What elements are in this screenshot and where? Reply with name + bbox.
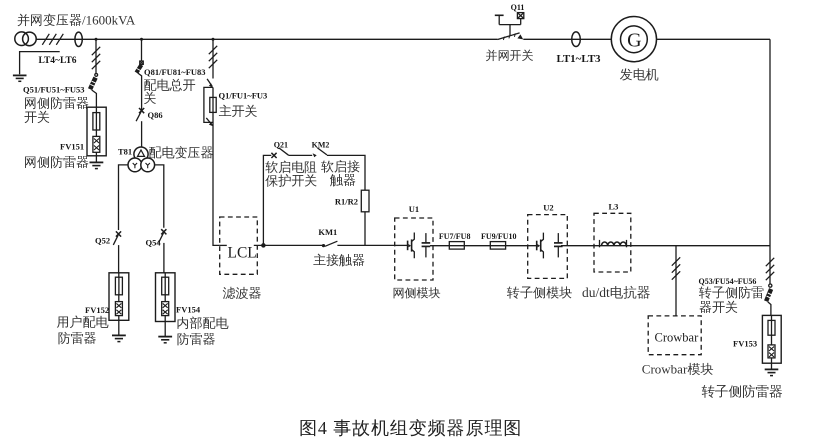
svg-text:Q11: Q11 <box>511 3 525 12</box>
svg-text:触器: 触器 <box>329 173 356 188</box>
svg-text:滤波器: 滤波器 <box>223 286 262 301</box>
svg-text:FU7/FU8: FU7/FU8 <box>439 232 471 241</box>
svg-text:保护开关: 保护开关 <box>264 173 317 188</box>
svg-text:开关: 开关 <box>24 110 50 125</box>
svg-text:Q52: Q52 <box>95 236 110 246</box>
svg-text:网侧防雷器: 网侧防雷器 <box>24 96 89 111</box>
svg-text:L3: L3 <box>609 202 619 212</box>
svg-text:转子侧模块: 转子侧模块 <box>507 285 572 300</box>
svg-text:U2: U2 <box>543 203 553 213</box>
svg-text:LT1~LT3: LT1~LT3 <box>557 53 602 65</box>
svg-text:Crowbar: Crowbar <box>655 331 700 345</box>
svg-text:器开关: 器开关 <box>699 300 738 315</box>
svg-text:Q81/FU81~FU83: Q81/FU81~FU83 <box>144 67 206 77</box>
svg-text:Q1/FU1~FU3: Q1/FU1~FU3 <box>219 91 268 101</box>
svg-text:Q54: Q54 <box>146 238 162 248</box>
svg-text:U1: U1 <box>409 204 419 214</box>
svg-text:并网变压器/1600kVA: 并网变压器/1600kVA <box>17 13 136 28</box>
svg-text:主开关: 主开关 <box>219 104 258 119</box>
svg-text:内部配电: 内部配电 <box>177 316 229 331</box>
svg-text:图4 事故机组变频器原理图: 图4 事故机组变频器原理图 <box>299 418 522 438</box>
svg-text:并网开关: 并网开关 <box>486 49 534 63</box>
svg-text:主接触器: 主接触器 <box>313 253 365 268</box>
svg-text:发电机: 发电机 <box>620 67 660 82</box>
svg-text:转子侧防雷器: 转子侧防雷器 <box>702 384 783 399</box>
svg-text:T81: T81 <box>118 147 132 157</box>
svg-text:KM1: KM1 <box>318 227 337 237</box>
svg-text:关: 关 <box>144 91 157 106</box>
svg-text:FV153: FV153 <box>733 339 757 349</box>
svg-text:LT4~LT6: LT4~LT6 <box>39 56 77 66</box>
svg-text:Q51/FU51~FU53: Q51/FU51~FU53 <box>23 85 85 95</box>
svg-text:网侧防雷器: 网侧防雷器 <box>24 155 89 170</box>
svg-text:Crowbar模块: Crowbar模块 <box>642 362 714 377</box>
svg-text:LCL: LCL <box>228 245 257 262</box>
svg-text:du/dt电抗器: du/dt电抗器 <box>582 285 650 300</box>
svg-text:G: G <box>627 30 641 52</box>
svg-text:防雷器: 防雷器 <box>177 332 216 347</box>
svg-text:配电变压器: 配电变压器 <box>149 145 214 160</box>
svg-text:转子侧防雷: 转子侧防雷 <box>699 285 764 300</box>
svg-text:网侧模块: 网侧模块 <box>393 286 441 300</box>
svg-text:Q86: Q86 <box>148 110 163 120</box>
svg-text:Q21: Q21 <box>274 141 288 150</box>
svg-text:FV154: FV154 <box>176 305 201 315</box>
svg-text:防雷器: 防雷器 <box>58 331 97 346</box>
svg-text:FU9/FU10: FU9/FU10 <box>481 232 517 241</box>
svg-text:FV151: FV151 <box>60 142 84 152</box>
svg-text:KM2: KM2 <box>312 141 330 150</box>
svg-text:用户配电: 用户配电 <box>57 315 109 330</box>
svg-text:R1/R2: R1/R2 <box>335 197 358 207</box>
svg-text:FV152: FV152 <box>85 305 109 315</box>
